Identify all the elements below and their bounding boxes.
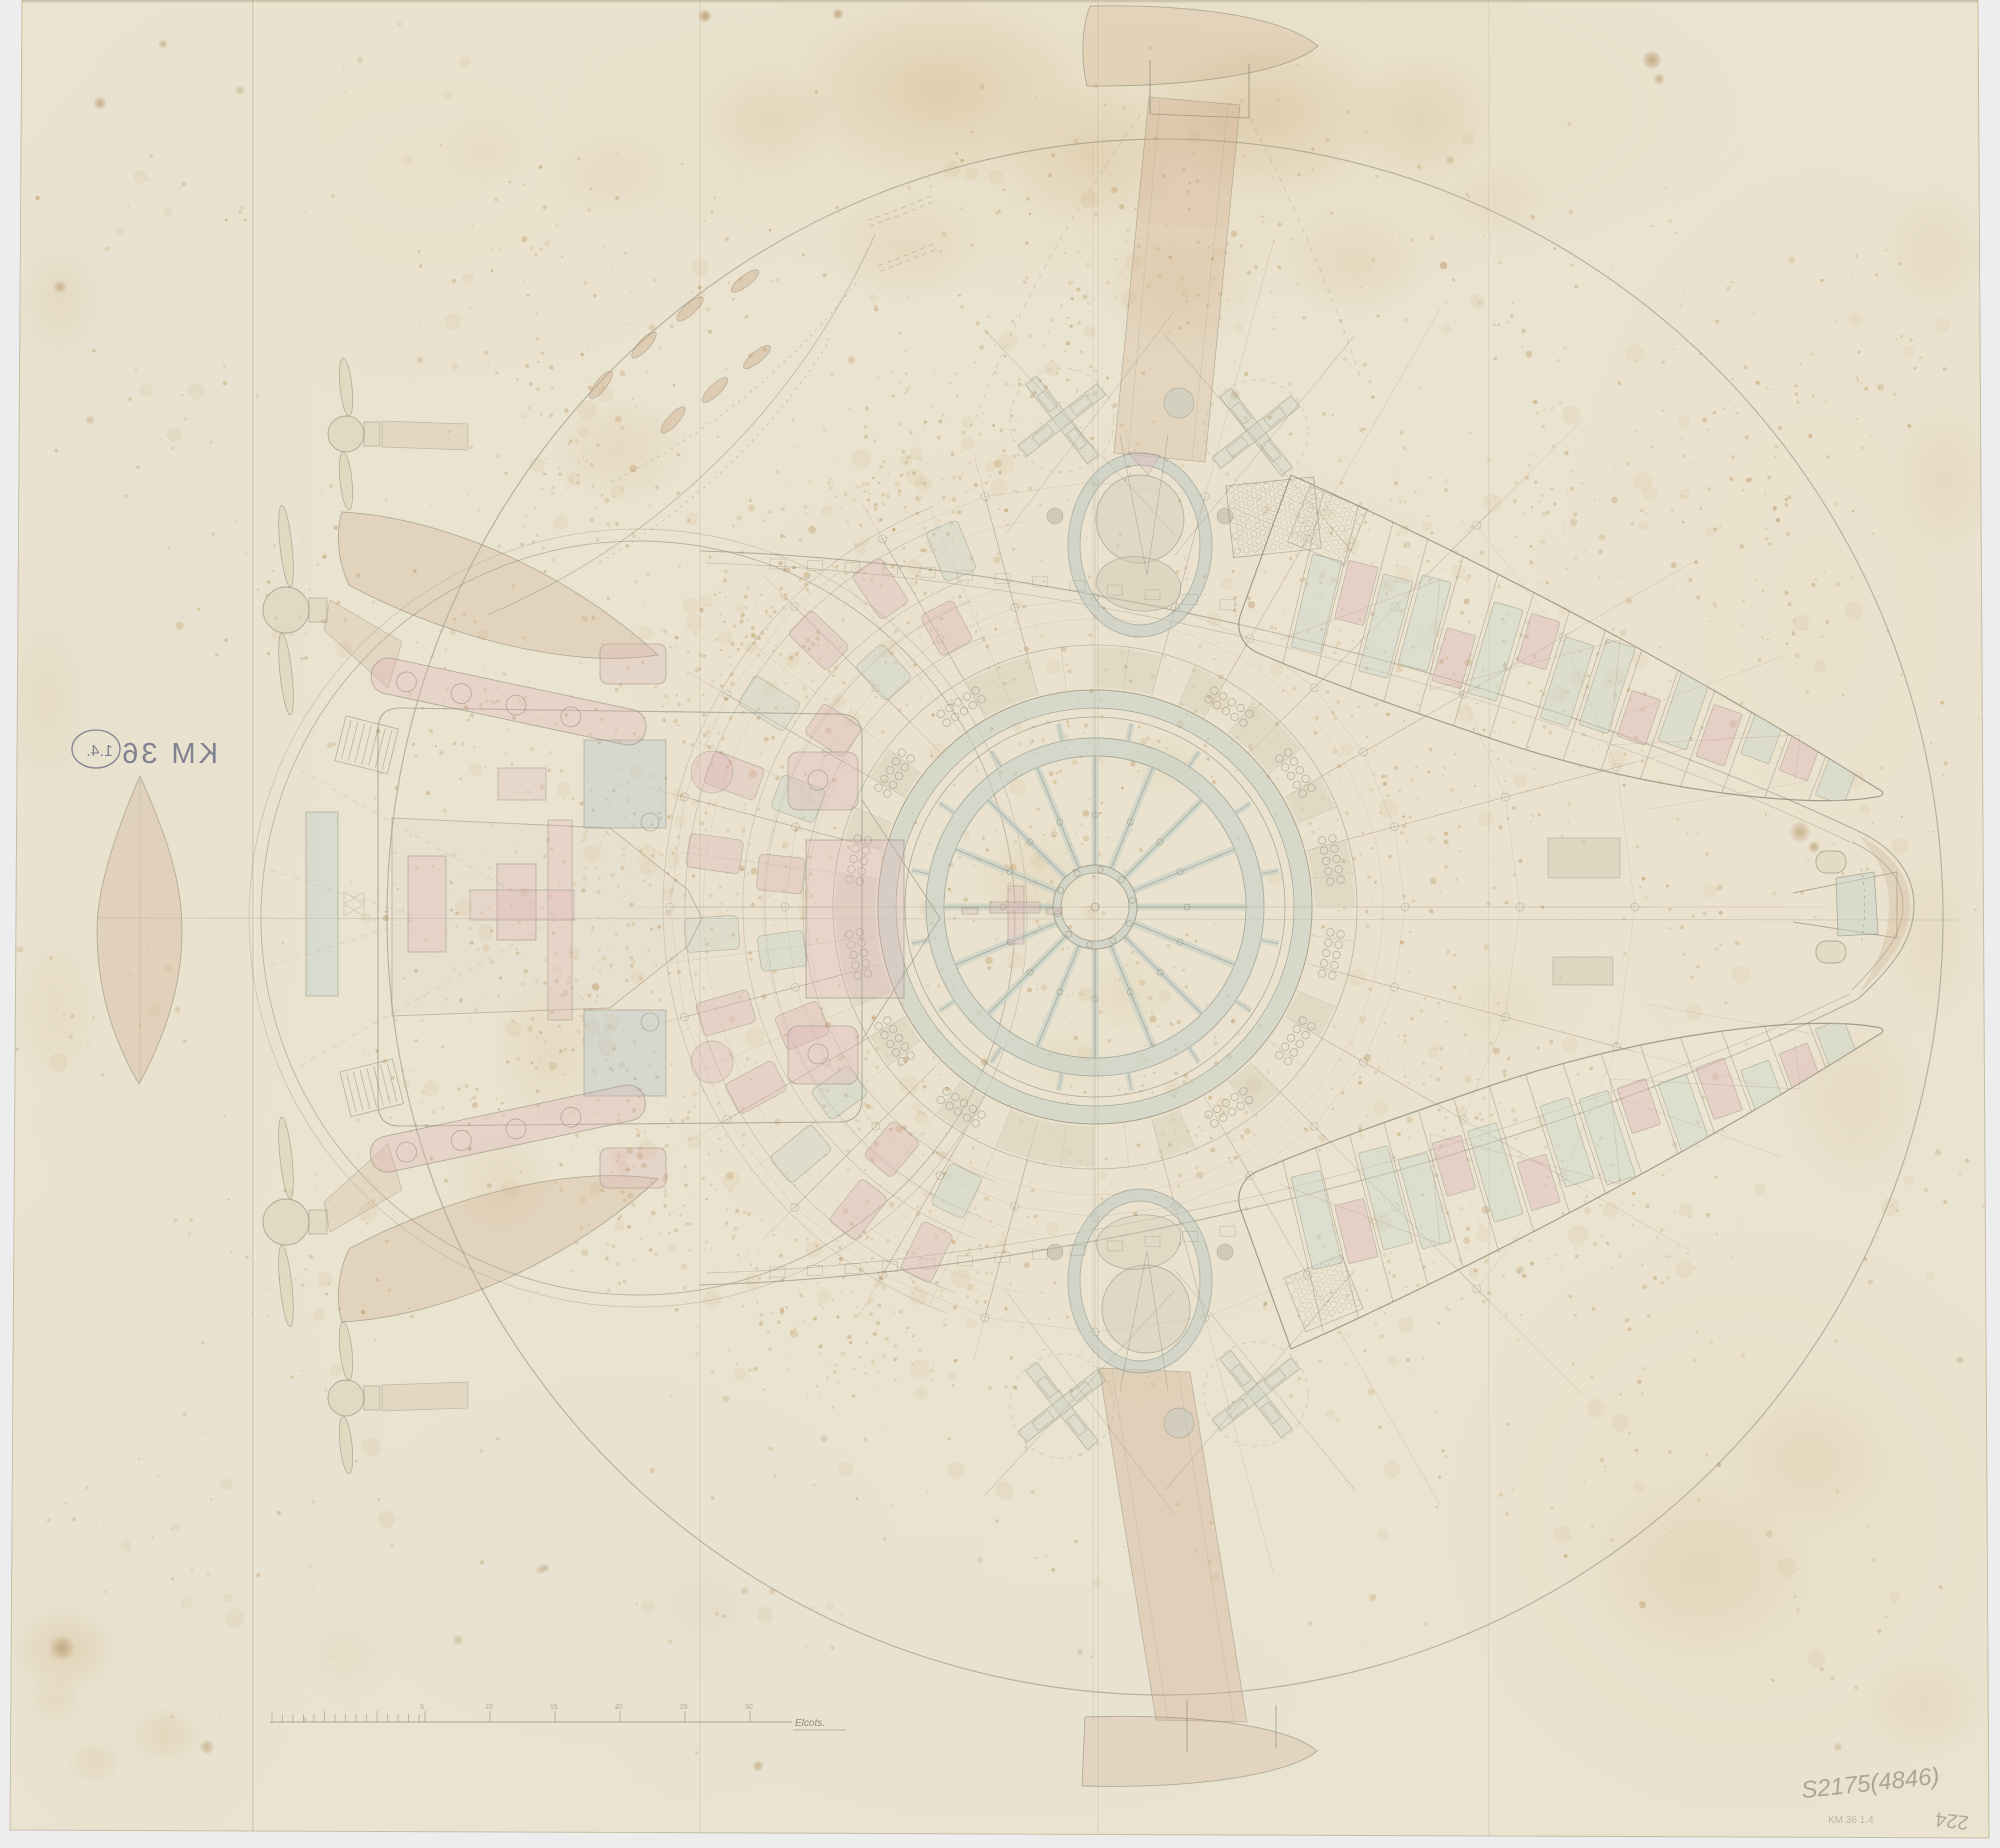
svg-text:15: 15 bbox=[550, 1704, 558, 1711]
svg-text:30: 30 bbox=[745, 1704, 753, 1711]
svg-text:5: 5 bbox=[420, 1704, 424, 1711]
svg-text:25: 25 bbox=[680, 1704, 688, 1711]
svg-text:10: 10 bbox=[485, 1704, 493, 1711]
svg-text:KM 36: KM 36 bbox=[119, 738, 218, 770]
svg-text:Elcots.: Elcots. bbox=[795, 1718, 825, 1729]
svg-text:KM 36 1.4: KM 36 1.4 bbox=[1828, 1815, 1874, 1826]
svg-text:20: 20 bbox=[615, 1704, 623, 1711]
svg-text:224: 224 bbox=[1934, 1807, 1970, 1833]
svg-text:1.4.: 1.4. bbox=[86, 743, 113, 760]
